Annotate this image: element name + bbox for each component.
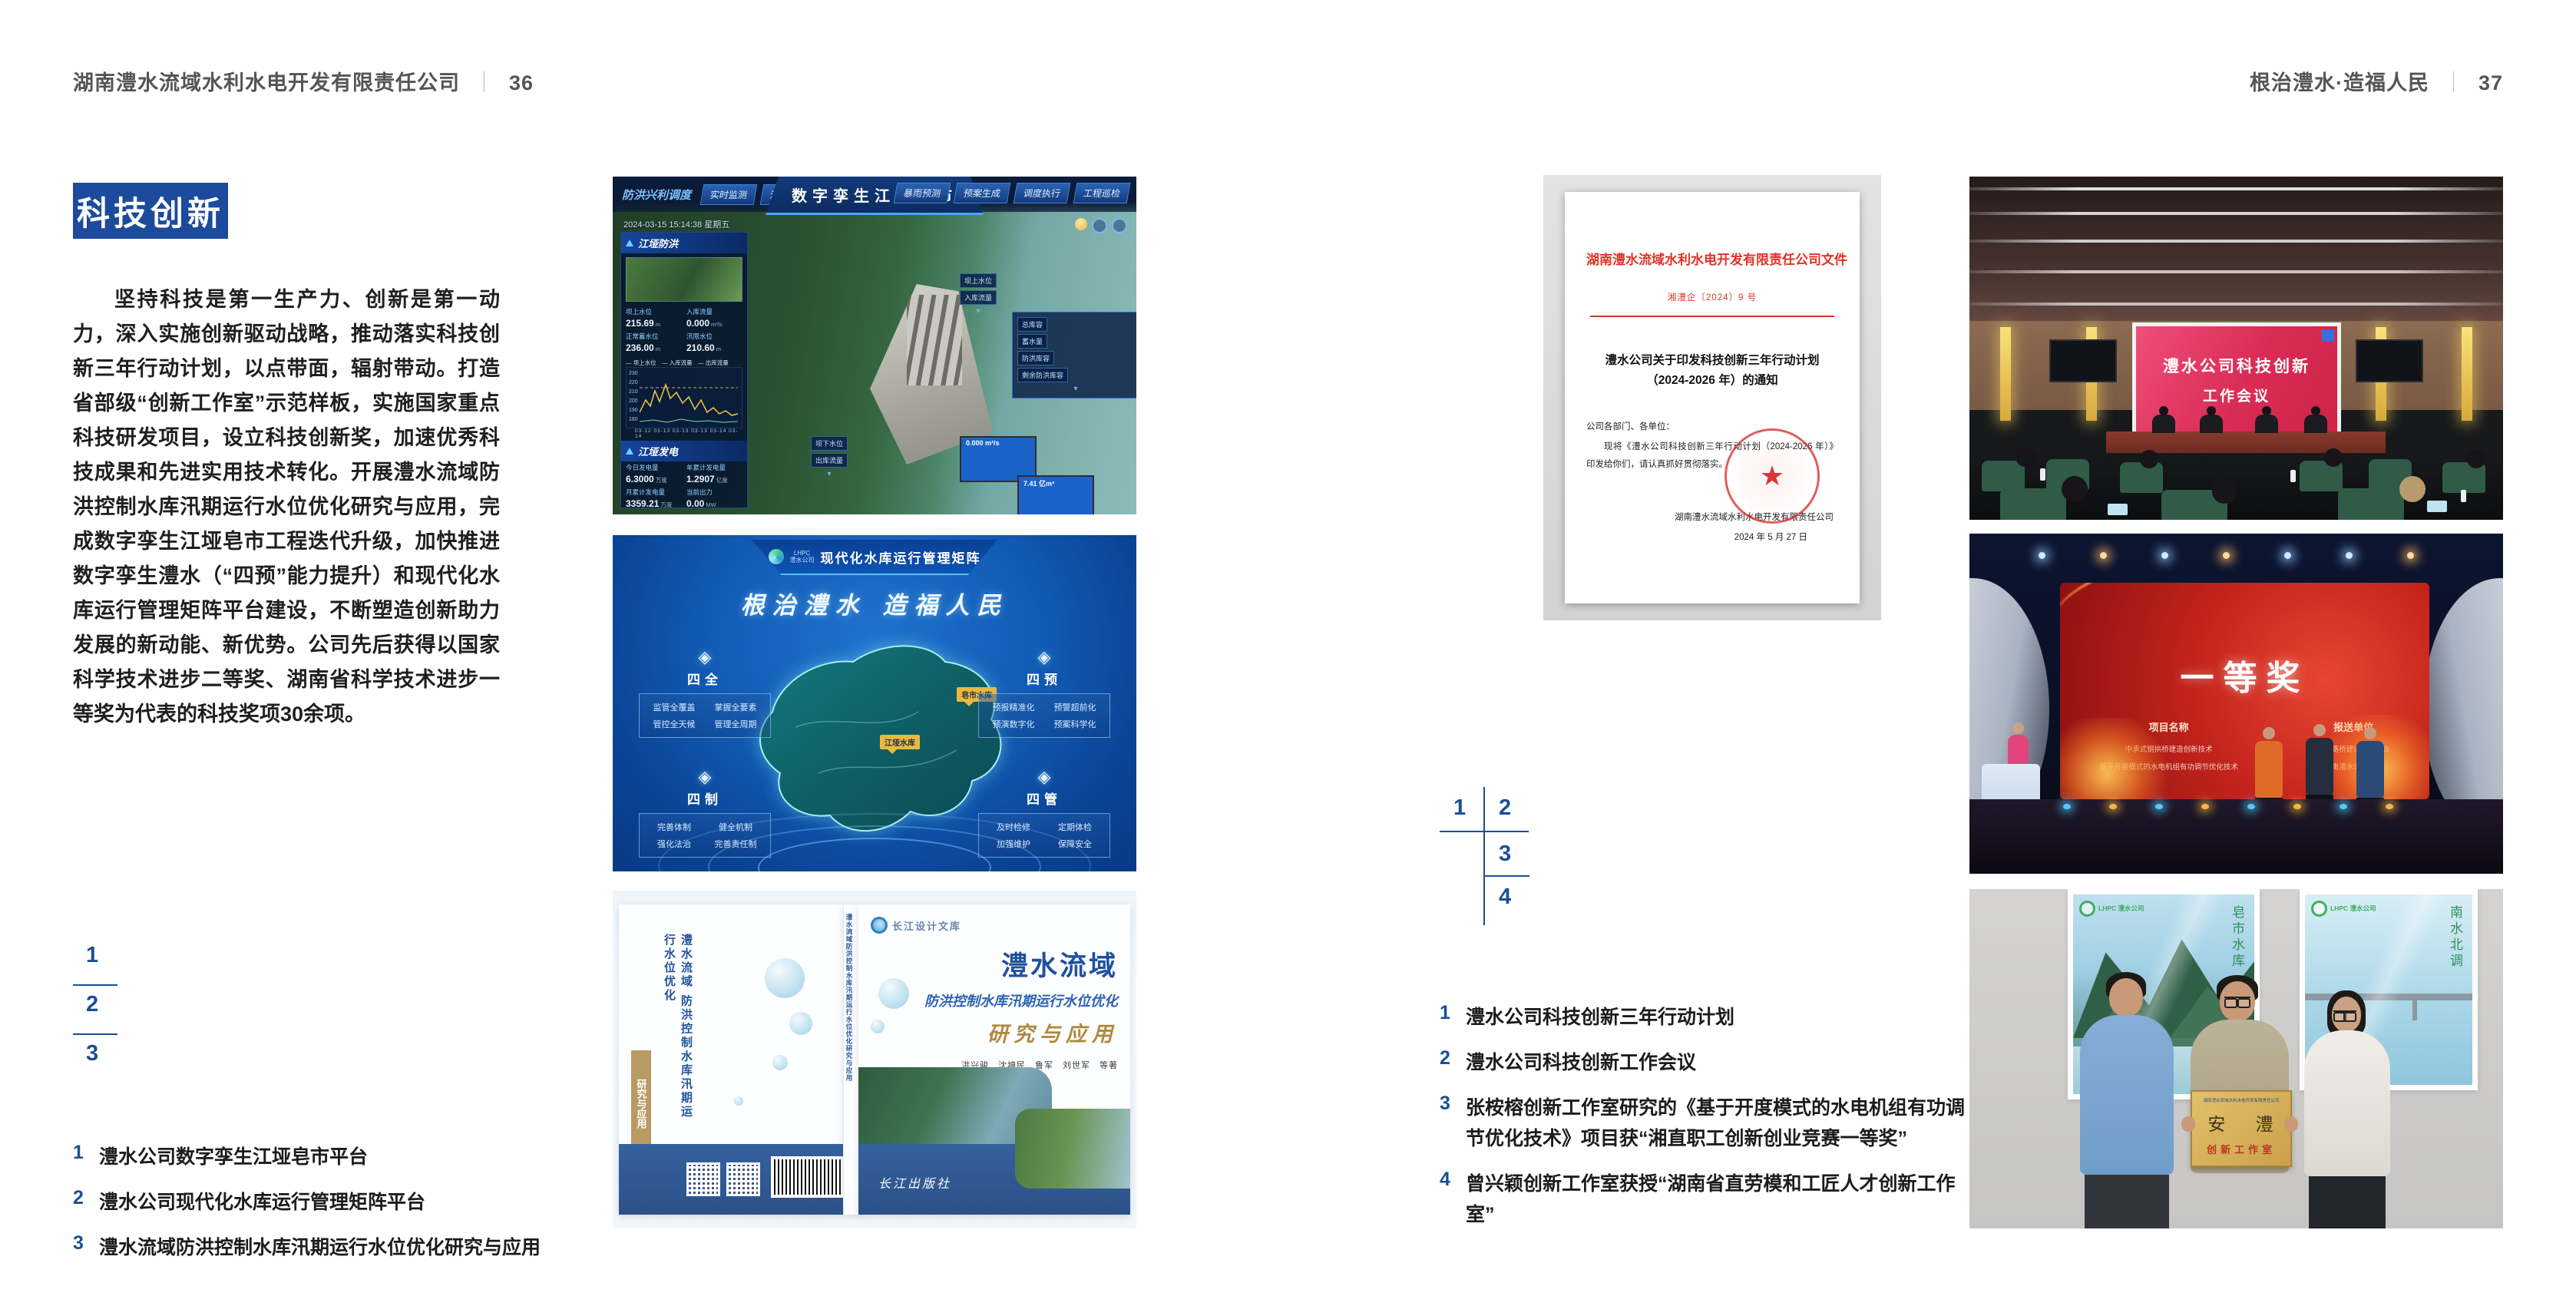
plaque-org-line: 湖南澧水流域水利水电开发有限责任公司 <box>2192 1097 2290 1103</box>
group-item: 监管全覆盖 <box>646 701 703 713</box>
dam-photo-small <box>1015 1109 1130 1189</box>
slide-logo-icon <box>2322 329 2334 342</box>
back-vertical-title: 澧水流域 防洪控制水库汛期运行水位优化 <box>660 934 694 1126</box>
stat-cell: 汛限水位210.60m <box>686 332 742 355</box>
reservoir-capacity-tag: 总库容17.41 亿m³ 蓄水量8.16 亿m³ 防洪库容7.41 亿m³ 剩余… <box>1012 312 1136 398</box>
figure-index-3: 3 <box>86 1041 98 1066</box>
chart-y-axis: 230 220 210 200 190 180 <box>627 368 640 428</box>
tag-label: 坝下水位 <box>811 436 848 451</box>
group-items: 监管全覆盖掌握全要素 管控全天候管理全周期 <box>639 693 771 738</box>
stage-floor <box>1969 799 2503 874</box>
person-skirt-right <box>2309 1176 2386 1228</box>
stat-value: 3359.21 <box>626 498 659 509</box>
water-level-chart: 230 220 210 200 190 180 <box>626 367 742 428</box>
light-strip <box>1969 212 2503 215</box>
caption-number: 2 <box>73 1187 99 1218</box>
stat-label: 入库流量 <box>686 307 742 316</box>
nav-right-group: 暴雨预测 预案生成 调度执行 工程巡检 <box>892 183 1132 203</box>
weather-icon <box>1075 218 1087 230</box>
caret-icon: ▾ <box>1017 385 1134 393</box>
floor-light <box>2246 802 2257 816</box>
stat-value: 1.2907 <box>686 474 715 484</box>
attendee-head <box>2467 450 2485 468</box>
section-title-badge: 科技创新 <box>73 183 228 239</box>
panelist <box>2200 415 2223 433</box>
index-divider <box>73 1033 117 1035</box>
figure-index-2: 2 <box>1499 795 1511 821</box>
stat-value: 6.3000 <box>626 474 654 484</box>
book-spine: 澧水流域防洪控制水库汛期运行水位优化研究与应用 <box>843 904 860 1215</box>
caption-item: 2 澧水公司科技创新工作会议 <box>1440 1047 1977 1078</box>
chair <box>1982 461 2025 491</box>
wall-tv <box>2356 339 2423 382</box>
tag-label: 入库流量 <box>960 290 997 305</box>
panelist <box>2255 415 2278 433</box>
generation-stats: 今日发电量6.3000万度 年累计发电量1.2907亿度 月累计发电量3359.… <box>621 461 747 512</box>
stat-cell: 正常蓄水位236.00m <box>626 332 682 355</box>
caption-text: 澧水公司科技创新工作会议 <box>1466 1047 1696 1078</box>
ceiling <box>1969 177 2503 321</box>
cube-icon: ◈ <box>978 767 1110 787</box>
cube-icon: ◈ <box>978 647 1110 667</box>
floor-light <box>2292 802 2303 816</box>
tag-label: 坝上水位 <box>960 273 997 288</box>
figure-official-document: 湖南澧水流域水利水电开发有限责任公司文件 湘澧企〔2024〕9 号 澧水公司关于… <box>1543 175 1881 620</box>
panelist <box>2152 415 2175 433</box>
stat-label: 月累计发电量 <box>626 488 682 497</box>
stage-spotlight <box>2346 552 2353 559</box>
stat-label: 当前出力 <box>686 488 742 497</box>
cube-icon: ◈ <box>639 767 771 787</box>
attendee-head <box>2399 476 2426 502</box>
group-item: 完善体制 <box>646 821 703 833</box>
floor-light <box>2108 802 2118 816</box>
logo-sub: 澧水公司 <box>790 557 815 564</box>
stat-unit: m <box>716 346 721 352</box>
stat-label: 今日发电量 <box>626 463 682 472</box>
company-name: 湖南澧水流域水利水电开发有限责任公司 <box>73 71 460 94</box>
wall-tv <box>2049 339 2117 382</box>
nav-chip: 预案生成 <box>954 183 1011 203</box>
page-number-left: 36 <box>509 71 534 94</box>
series-logo-icon <box>871 917 888 934</box>
tag-value: 7.41 亿m³ <box>1017 475 1094 514</box>
spine-title: 澧水流域防洪控制水库汛期运行水位优化研究与应用 <box>845 914 852 1205</box>
book-title-sub: 防洪控制水库汛期运行水位优化 <box>924 990 1118 1010</box>
stat-unit: m <box>656 321 660 328</box>
panel-title: 江垭发电 <box>638 444 678 458</box>
platform-header: LHPC澧水公司 现代化水库运行管理矩阵 <box>752 540 997 575</box>
caption-number: 4 <box>1440 1169 1466 1230</box>
stat-label: 年累计发电量 <box>686 463 742 472</box>
attendee-head <box>2212 479 2237 504</box>
back-cover-band <box>619 1144 843 1215</box>
panel-title: 江垭防洪 <box>638 236 678 250</box>
group-item: 预报精准化 <box>985 701 1042 713</box>
group-item: 预案科学化 <box>1047 718 1103 730</box>
glasses-icon <box>2224 997 2250 1006</box>
stat-unit: m <box>656 346 660 352</box>
light-strip <box>1969 303 2503 306</box>
document-salutation: 公司各部门、各单位： <box>1586 420 1838 432</box>
chair <box>2338 488 2404 520</box>
chart-legend: — 坝上水位 — 入库流量 — 出库流量 <box>621 356 747 367</box>
figure-index-1: 1 <box>86 943 98 968</box>
caption-number: 1 <box>1440 1002 1466 1033</box>
index-divider <box>1483 875 1529 877</box>
light-column <box>2462 327 2472 421</box>
mode-label: 防洪兴利调度 <box>622 187 691 203</box>
droplet-decor <box>772 1055 788 1070</box>
tag-label: 蓄水量 <box>1017 334 1047 349</box>
calligraphy-slogan: 根治澧水 造福人民 <box>613 586 1136 620</box>
attendee-head <box>2062 476 2088 502</box>
nav-chip: 调度执行 <box>1014 183 1071 203</box>
floor-light <box>2154 802 2164 816</box>
front-title-block: 澧水流域 防洪控制水库汛期运行水位优化 研究与应用 洪兴骏 沈坤民 鲁军 刘世军… <box>924 944 1118 1071</box>
caption-text: 曾兴颖创新工作室获授“湖南省直劳模和工匠人才创新工作室” <box>1466 1169 1977 1230</box>
caret-icon: ▾ <box>960 307 997 316</box>
person-torso <box>2356 741 2384 798</box>
datetime-label: 2024-03-15 15:14:38 星期五 <box>623 218 729 230</box>
person-torso <box>2255 741 2283 798</box>
tag-label: 剩余防洪库容 <box>1017 368 1068 382</box>
caret-icon: ▾ <box>811 470 848 478</box>
right-running-head: 根治澧水·造福人民｜37 <box>2250 66 2503 96</box>
stat-unit: 万度 <box>656 477 667 484</box>
light-strip <box>1969 187 2503 190</box>
stat-value: 0.000 <box>686 318 709 329</box>
series-logo-row: 长江设计文库 <box>871 917 961 934</box>
group-items: 预报精准化预警超前化 预演数字化预案科学化 <box>978 693 1110 738</box>
nav-chip: 工程巡检 <box>1073 183 1131 203</box>
stage-spotlight <box>2100 552 2107 559</box>
person-pants-left <box>2085 1175 2169 1228</box>
caption-text: 澧水流域防洪控制水库汛期运行水位优化研究与应用 <box>99 1232 541 1263</box>
magazine-spread: 湖南澧水流域水利水电开发有限责任公司｜36 根治澧水·造福人民｜37 科技创新 … <box>0 0 2576 1306</box>
flood-stats: 坝上水位215.69m 入库流量0.000m³/s 正常蓄水位236.00m 汛… <box>621 306 747 356</box>
figure-matrix-platform: LHPC澧水公司 现代化水库运行管理矩阵 根治澧水 造福人民 江垭水库 皂市水库… <box>613 535 1136 871</box>
title-line-1: 澧水公司关于印发科技创新三年行动计划 <box>1586 351 1838 371</box>
caption-item: 2 澧水公司现代化水库运行管理矩阵平台 <box>73 1187 549 1218</box>
barcode <box>771 1156 848 1198</box>
caption-text: 澧水公司数字孪生江垭皂市平台 <box>99 1142 368 1172</box>
attendee-head <box>2324 448 2343 467</box>
logo-abbr: LHPC <box>794 550 810 557</box>
header-divider: ｜ <box>2443 71 2465 94</box>
group-item: 管控全天候 <box>646 718 703 730</box>
document-number: 湘澧企〔2024〕9 号 <box>1586 291 1838 303</box>
attendee-head <box>2140 450 2158 468</box>
tag-label: 防洪库容 <box>1017 351 1054 365</box>
figure-award-ceremony: 一等奖 项目名称 中承式钢拱桥建造创新技术 基于开度模式的水电机组有功调节优化技… <box>1969 534 2503 874</box>
attendee-head <box>2015 447 2035 467</box>
floor-light <box>2062 802 2072 816</box>
document-date: 2024 年 5 月 27 日 <box>1586 531 1838 543</box>
water-bottle <box>2461 490 2466 502</box>
droplet-decor <box>765 958 805 998</box>
group-item: 预警超前化 <box>1047 701 1103 713</box>
nav-chip: 实时监测 <box>700 184 758 205</box>
upstream-level-tag: 坝上水位236.69 m 入库流量0.000 m³/s ▾ <box>960 273 997 316</box>
stat-value: 215.69 <box>626 318 654 329</box>
red-rule <box>1590 316 1834 317</box>
person-head <box>2313 724 2326 736</box>
caption-number: 3 <box>1440 1093 1466 1154</box>
dam-thumbnail <box>626 257 742 302</box>
figure-index-1: 1 <box>1453 795 1466 821</box>
chair <box>2120 462 2163 493</box>
person-head <box>2364 727 2376 739</box>
caption-item: 4 曾兴颖创新工作室获授“湖南省直劳模和工匠人才创新工作室” <box>1440 1169 1977 1230</box>
nav-chip: 暴雨预测 <box>894 183 951 203</box>
figure-index-2: 2 <box>86 992 98 1017</box>
figure-index-3: 3 <box>1499 841 1511 867</box>
sail-icon <box>626 240 633 246</box>
person-head-left <box>2109 978 2143 1017</box>
tissue-box <box>2427 501 2447 512</box>
stat-cell: 年累计发电量1.2907亿度 <box>686 463 742 486</box>
group-item: 掌握全要素 <box>707 701 764 713</box>
stage-spotlight <box>2407 552 2414 559</box>
title-line-2: （2024-2026 年）的通知 <box>1586 371 1838 391</box>
dashboard-nav-bar: 防洪兴利调度 实时监测 洪水预报 防洪预警 数字孪生江垭皂市 暴雨预测 预案生成… <box>613 177 1136 212</box>
droplet-decor <box>878 978 909 1009</box>
light-strip <box>1969 240 2503 243</box>
person-torso-left <box>2080 1015 2174 1175</box>
downstream-level-tag: 坝下水位136.78 m 出库流量65.8 m³/s ▾ <box>811 436 848 478</box>
stat-unit: MW <box>706 501 716 508</box>
caption-item: 3 澧水流域防洪控制水库汛期运行水位优化研究与应用 <box>73 1232 549 1263</box>
plaque-subtitle: 创新工作室 <box>2192 1142 2290 1156</box>
group-item: 管理全周期 <box>707 718 764 730</box>
document-paper: 湖南澧水流域水利水电开发有限责任公司文件 湘澧企〔2024〕9 号 澧水公司关于… <box>1565 192 1860 603</box>
right-caption-list: 1 澧水公司科技创新三年行动计划 2 澧水公司科技创新工作会议 3 张桉榕创新工… <box>1440 1002 1977 1245</box>
slogan: 根治澧水·造福人民 <box>2250 71 2429 94</box>
stage-spotlight <box>2223 552 2230 559</box>
index-divider <box>1440 831 1529 832</box>
figure-digital-twin-platform: 防洪兴利调度 实时监测 洪水预报 防洪预警 数字孪生江垭皂市 暴雨预测 预案生成… <box>613 177 1136 514</box>
slide-title-line2: 工作会议 <box>2136 385 2337 405</box>
group-name: 四管 <box>978 789 1110 808</box>
stat-cell: 坝上水位215.69m <box>626 307 682 330</box>
stat-label: 坝上水位 <box>626 307 682 316</box>
map-pin-jiangya: 江垭水库 <box>880 735 920 749</box>
firework-decor <box>2060 718 2172 799</box>
document-title: 澧水公司关于印发科技创新三年行动计划 （2024-2026 年）的通知 <box>1586 351 1838 391</box>
spillway <box>907 295 962 385</box>
caption-number: 1 <box>73 1142 99 1172</box>
stat-value: 0.00 <box>686 498 704 509</box>
page-number-right: 37 <box>2478 71 2503 94</box>
figure-index-4: 4 <box>1499 884 1511 910</box>
floor-light <box>2338 802 2349 816</box>
group-name: 四预 <box>978 669 1110 688</box>
chair <box>2000 488 2066 520</box>
host-figure <box>2012 722 2024 734</box>
panel-header: 江垭发电 <box>621 441 747 461</box>
light-strip <box>1969 270 2503 273</box>
stage-spotlight <box>2284 552 2291 559</box>
stat-cell: 入库流量0.000m³/s <box>686 307 742 330</box>
caption-number: 3 <box>73 1232 99 1263</box>
caption-text: 澧水公司科技创新三年行动计划 <box>1466 1002 1734 1033</box>
caption-text: 张桉榕创新工作室研究的《基于开度模式的水电机组有功调节优化技术》项目获“湘直职工… <box>1466 1093 1977 1154</box>
logo-text: LHPC澧水公司 <box>790 550 815 564</box>
studio-plaque: 湖南澧水流域水利水电开发有限责任公司 安 澧 创新工作室 <box>2191 1090 2292 1167</box>
group-item: 定期体检 <box>1047 821 1103 833</box>
stat-unit: 亿度 <box>716 477 728 484</box>
caption-number: 2 <box>1440 1047 1466 1078</box>
tissue-box <box>2108 504 2128 515</box>
person-torso-right <box>2304 1030 2390 1176</box>
flood-panel: 江垭防洪 坝上水位215.69m 入库流量0.000m³/s 正常蓄水位236.… <box>620 232 748 508</box>
person-head <box>2263 727 2275 739</box>
stage-spotlight <box>2039 552 2045 559</box>
group-item: 预演数字化 <box>985 718 1042 730</box>
book-title-main: 澧水流域 <box>924 944 1118 984</box>
stat-unit: 万度 <box>660 501 672 508</box>
chart-plot <box>640 368 738 428</box>
floor-light <box>2200 802 2211 816</box>
tag-label: 总库容 <box>1017 317 1047 332</box>
left-running-head: 湖南澧水流域水利水电开发有限责任公司｜36 <box>73 66 534 96</box>
matrix-group-siyu: ◈ 四预 预报精准化预警超前化 预演数字化预案科学化 <box>978 647 1110 738</box>
panelist <box>2304 415 2327 433</box>
droplet-decor <box>871 1020 885 1033</box>
seal-star-icon: ★ <box>1760 460 1784 492</box>
cube-icon: ◈ <box>639 647 771 667</box>
audience <box>1969 453 2503 520</box>
droplet-decor <box>734 1096 743 1106</box>
body-paragraph: 坚持科技是第一生产力、创新是第一动力，深入实施创新驱动战略，推动落实科技创新三年… <box>73 283 500 732</box>
compass-icon <box>1112 218 1127 233</box>
header-divider: ｜ <box>474 71 495 94</box>
book-back-cover: 研究与应用 澧水流域 防洪控制水库汛期运行水位优化 <box>619 904 843 1215</box>
stat-cell: 月累计发电量3359.21万度 <box>626 488 682 511</box>
group-name: 四制 <box>639 789 771 808</box>
group-name: 四全 <box>639 669 771 688</box>
person-torso <box>2306 738 2333 795</box>
hand <box>2181 1116 2195 1132</box>
stat-cell: 今日发电量6.3000万度 <box>626 463 682 486</box>
figure-innovation-meeting: 澧水公司科技创新 工作会议 <box>1969 177 2503 520</box>
left-caption-list: 1 澧水公司数字孪生江垭皂市平台 2 澧水公司现代化水库运行管理矩阵平台 3 澧… <box>73 1142 549 1278</box>
figure-book-cover: 研究与应用 澧水流域 防洪控制水库汛期运行水位优化 澧水流域防洪控制水库汛期运行… <box>613 891 1136 1228</box>
caption-item: 1 澧水公司数字孪生江垭皂市平台 <box>73 1142 549 1172</box>
water-bottle <box>2040 468 2045 481</box>
stat-label: 正常蓄水位 <box>626 332 682 341</box>
series-name: 长江设计文库 <box>892 918 961 933</box>
slide-title-line1: 澧水公司科技创新 <box>2136 326 2337 377</box>
stat-cell: 当前出力0.00MW <box>686 488 742 511</box>
hand <box>2284 1116 2298 1132</box>
caption-item: 3 张桉榕创新工作室研究的《基于开度模式的水电机组有功调节优化技术》项目获“湘直… <box>1440 1093 1977 1154</box>
glasses-icon <box>2333 1010 2356 1020</box>
water-bottle <box>2290 470 2296 482</box>
qr-code <box>726 1162 760 1196</box>
tag-label: 出库流量 <box>811 453 848 468</box>
toolbar-icons <box>1075 218 1127 233</box>
panel-header: 江垭防洪 <box>621 233 747 253</box>
figure-innovation-studio: LHPC 澧水公司 皂市水库 LHPC 澧水公司 南水北调 <box>1969 889 2503 1228</box>
droplet-decor <box>789 1012 812 1035</box>
chart-x-axis: 03-12 03-13 03-13 03-13 03-14 03-14 <box>621 428 747 441</box>
stage-spotlight <box>2161 552 2168 559</box>
back-gold-tab: 研究与应用 <box>631 1050 651 1156</box>
floor-light <box>2384 802 2395 816</box>
index-divider <box>73 984 117 986</box>
lhpc-logo-icon <box>769 549 784 564</box>
caption-text: 澧水公司现代化水库运行管理矩阵平台 <box>99 1187 425 1218</box>
plaque-name: 安 澧 <box>2192 1109 2290 1136</box>
matrix-group-siquan: ◈ 四全 监管全覆盖掌握全要素 管控全天候管理全周期 <box>639 647 771 738</box>
light-column <box>2000 327 2011 421</box>
qr-code <box>686 1162 720 1196</box>
stat-value: 210.60 <box>686 342 715 353</box>
layer-icon <box>1092 218 1107 233</box>
index-vertical-rule <box>1483 787 1485 925</box>
stat-unit: m³/s <box>711 321 723 328</box>
publisher-name: 长江出版社 <box>878 1173 951 1192</box>
stat-label: 汛限水位 <box>686 332 742 341</box>
official-seal: ★ <box>1724 428 1820 524</box>
book-front-cover: 长江设计文库 澧水流域 防洪控制水库汛期运行水位优化 研究与应用 洪兴骏 沈坤民… <box>858 904 1130 1215</box>
stat-value: 236.00 <box>626 342 654 353</box>
sail-icon <box>626 448 633 455</box>
caption-item: 1 澧水公司科技创新三年行动计划 <box>1440 1002 1977 1033</box>
book-title-tail: 研究与应用 <box>924 1017 1118 1047</box>
document-masthead: 湖南澧水流域水利水电开发有限责任公司文件 <box>1586 249 1838 268</box>
platform-title: 现代化水库运行管理矩阵 <box>821 547 981 567</box>
